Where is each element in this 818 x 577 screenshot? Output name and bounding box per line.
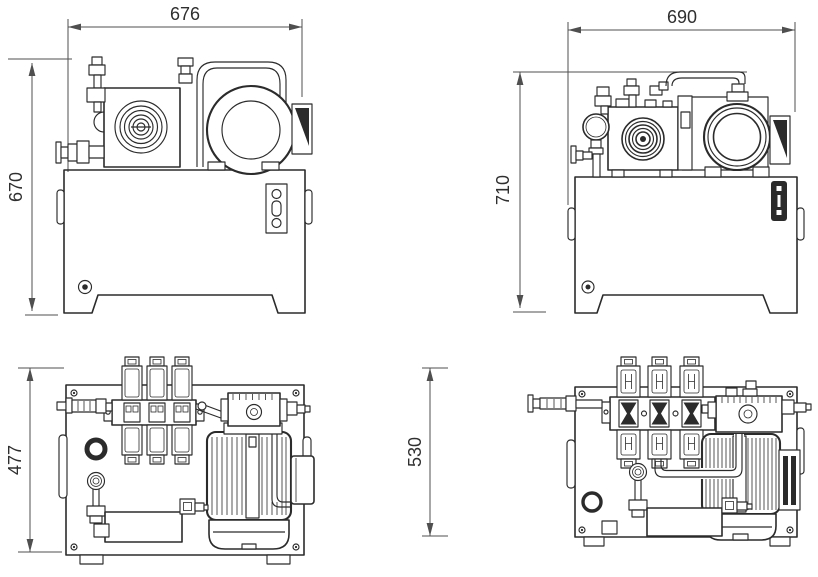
motor-foot — [753, 167, 769, 177]
coupling-housing — [678, 96, 692, 170]
plate-handle-left — [59, 435, 67, 498]
motor-foot — [208, 162, 225, 170]
dimension-height-670: 670 — [6, 59, 72, 315]
pump-block-a — [94, 88, 180, 167]
oil-level-gauge — [771, 181, 787, 221]
foot-tab — [770, 537, 790, 546]
suction-fitting-column-a — [87, 57, 105, 112]
foot-tab — [80, 555, 103, 564]
motor-foot — [705, 167, 721, 177]
dim-label-depth-a: 477 — [5, 445, 25, 475]
manifold — [610, 397, 715, 430]
terminal-box — [291, 456, 314, 504]
dim-label-height-b: 710 — [493, 175, 513, 205]
dim-label-width-a: 676 — [170, 4, 200, 24]
dimension-depth-530: 530 — [405, 368, 448, 536]
hydraulic-power-unit-drawing: 676 670 — [0, 0, 818, 577]
terminal-bracket-b — [770, 116, 790, 164]
shutoff-valve-a — [56, 141, 104, 163]
pump-motor-group-b — [571, 72, 790, 177]
tank-handle-right — [797, 208, 804, 240]
view-front-left: 676 670 — [6, 4, 312, 315]
dim-label-width-b: 690 — [667, 7, 697, 27]
view-plan-right: 530 — [405, 357, 811, 546]
tank-handle-left — [568, 208, 575, 240]
solenoid-valve — [122, 357, 142, 464]
terminal-bracket-a — [292, 104, 312, 154]
pump-block-b — [608, 107, 678, 177]
pressure-gauge — [583, 114, 609, 177]
tank-handle-left — [57, 190, 64, 224]
view-plan-left: 477 — [5, 357, 314, 564]
pump-motor-group-a — [56, 57, 312, 174]
view-front-right: 690 710 — [493, 7, 804, 313]
dimension-depth-477: 477 — [5, 368, 64, 552]
dim-label-height-a: 670 — [6, 172, 26, 202]
dim-label-depth-b: 530 — [405, 437, 425, 467]
drain-plug — [582, 281, 594, 293]
return-filter-body — [105, 512, 182, 542]
oil-level-gauge — [266, 184, 287, 233]
electric-motor-b — [704, 104, 770, 177]
return-filter-body — [647, 508, 722, 536]
pipe-inner — [672, 78, 739, 86]
solenoid-valve — [147, 357, 167, 464]
motor-foot — [262, 162, 279, 170]
foot-tab — [267, 555, 290, 564]
reservoir-tank-b — [568, 177, 804, 313]
solenoid-valve — [172, 357, 192, 464]
plate-handle-left — [567, 440, 575, 488]
foot-tab — [584, 537, 604, 546]
electric-motor-a — [207, 86, 295, 174]
tank-handle-right — [305, 190, 312, 224]
reservoir-tank-a — [57, 170, 312, 313]
technical-drawing-canvas: 676 670 — [0, 0, 818, 577]
drain-plug — [79, 281, 92, 294]
side-bracket-b — [779, 450, 800, 510]
